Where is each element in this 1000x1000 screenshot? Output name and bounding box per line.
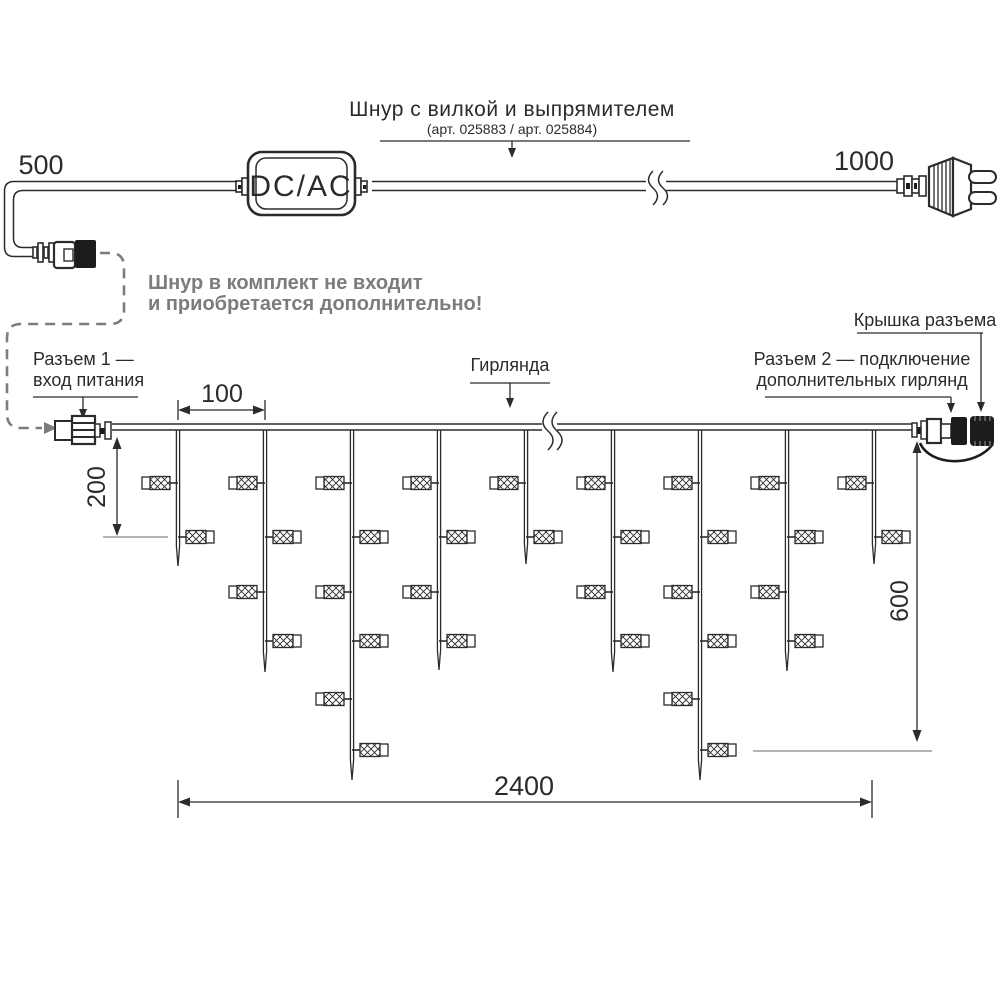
- led-bulb: [439, 635, 475, 648]
- cord-end-connector: [33, 240, 96, 268]
- led-bulb: [787, 635, 823, 648]
- garland-drop: [751, 430, 823, 671]
- dim-2400-value: 2400: [494, 771, 554, 801]
- connector-cap: [970, 416, 994, 446]
- led-bulb: [352, 744, 388, 757]
- led-bulb: [265, 635, 301, 648]
- diagram-page: Шнур с вилкой и выпрямителем (арт. 02588…: [0, 0, 1000, 1000]
- garland-drop: [577, 430, 649, 672]
- led-bulb: [352, 531, 388, 544]
- led-bulb: [664, 693, 700, 706]
- connector1: [55, 416, 111, 444]
- garland-wire: [112, 412, 912, 450]
- led-bulb: [316, 477, 352, 490]
- led-bulb: [265, 531, 301, 544]
- garland-drop: [142, 430, 214, 566]
- garland-drop: [316, 430, 388, 780]
- garland-drops: [142, 430, 910, 780]
- note-line1: Шнур в комплект не входит: [148, 272, 423, 294]
- cord-label-callout: Шнур с вилкой и выпрямителем (арт. 02588…: [349, 98, 690, 158]
- connector2-callout: Разъем 2 — подключение дополнительных ги…: [754, 349, 971, 413]
- led-bulb: [874, 531, 910, 544]
- dc-ac-converter: DC/AC: [236, 152, 367, 215]
- led-bulb: [403, 586, 439, 599]
- led-bulb: [751, 586, 787, 599]
- led-bulb: [700, 635, 736, 648]
- connector2-label-line1: Разъем 2 — подключение: [754, 349, 971, 369]
- cord-article: (арт. 025883 / арт. 025884): [427, 121, 597, 137]
- led-bulb: [787, 531, 823, 544]
- dim-total-length: 2400: [178, 771, 872, 818]
- connector2-label-line2: дополнительных гирлянд: [756, 370, 968, 390]
- led-bulb: [577, 477, 613, 490]
- not-included-note: Шнур в комплект не входит и приобретаетс…: [7, 253, 482, 434]
- garland-drop: [838, 430, 910, 564]
- connector1-label-line2: вход питания: [33, 370, 144, 390]
- dim-500: 500: [18, 150, 63, 180]
- led-bulb: [700, 531, 736, 544]
- connector1-label-line1: Разъем 1 —: [33, 349, 134, 369]
- led-bulb: [526, 531, 562, 544]
- garland-drop: [403, 430, 475, 670]
- led-bulb: [229, 586, 265, 599]
- garland-diagram: Шнур с вилкой и выпрямителем (арт. 02588…: [0, 0, 1000, 1000]
- led-bulb: [577, 586, 613, 599]
- garland-drop: [229, 430, 301, 672]
- mains-plug: [897, 158, 996, 216]
- led-bulb: [316, 586, 352, 599]
- led-bulb: [751, 477, 787, 490]
- led-bulb: [613, 531, 649, 544]
- dim-100-value: 100: [201, 380, 243, 408]
- led-bulb: [229, 477, 265, 490]
- led-bulb: [664, 586, 700, 599]
- wire-break-icon: [552, 412, 562, 450]
- garland-drop: [664, 430, 736, 780]
- wire-break-icon: [543, 412, 553, 450]
- led-bulb: [700, 744, 736, 757]
- led-bulb: [490, 477, 526, 490]
- led-bulb: [316, 693, 352, 706]
- dim-200-value: 200: [83, 466, 111, 508]
- power-cord-assembly: Шнур с вилкой и выпрямителем (арт. 02588…: [5, 98, 997, 268]
- cord-right: [372, 171, 897, 205]
- dim-600-value: 600: [886, 580, 914, 622]
- connector2-and-cap: [912, 416, 994, 461]
- led-bulb: [838, 477, 874, 490]
- led-bulb: [613, 635, 649, 648]
- dashed-leader: [7, 253, 124, 428]
- cord-label: Шнур с вилкой и выпрямителем: [349, 98, 675, 121]
- garland-callout: Гирлянда: [470, 355, 550, 408]
- led-bulb: [352, 635, 388, 648]
- garland-label: Гирлянда: [471, 355, 551, 375]
- note-line2: и приобретается дополнительно!: [148, 293, 482, 315]
- cord-label-arrowhead: [508, 148, 516, 158]
- led-bulb: [664, 477, 700, 490]
- led-bulb: [439, 531, 475, 544]
- led-bulb: [403, 477, 439, 490]
- connector1-callout: Разъем 1 — вход питания: [33, 349, 144, 419]
- dim-1000: 1000: [834, 146, 894, 176]
- cord-break-icon: [659, 171, 668, 205]
- cord-break-icon: [649, 171, 658, 205]
- cap-label: Крышка разъема: [854, 310, 997, 330]
- dc-ac-label: DC/AC: [249, 170, 352, 203]
- garland-drop: [490, 430, 562, 564]
- dim-drop-spacing: 100: [178, 380, 265, 420]
- led-bulb: [142, 477, 178, 490]
- led-bulb: [178, 531, 214, 544]
